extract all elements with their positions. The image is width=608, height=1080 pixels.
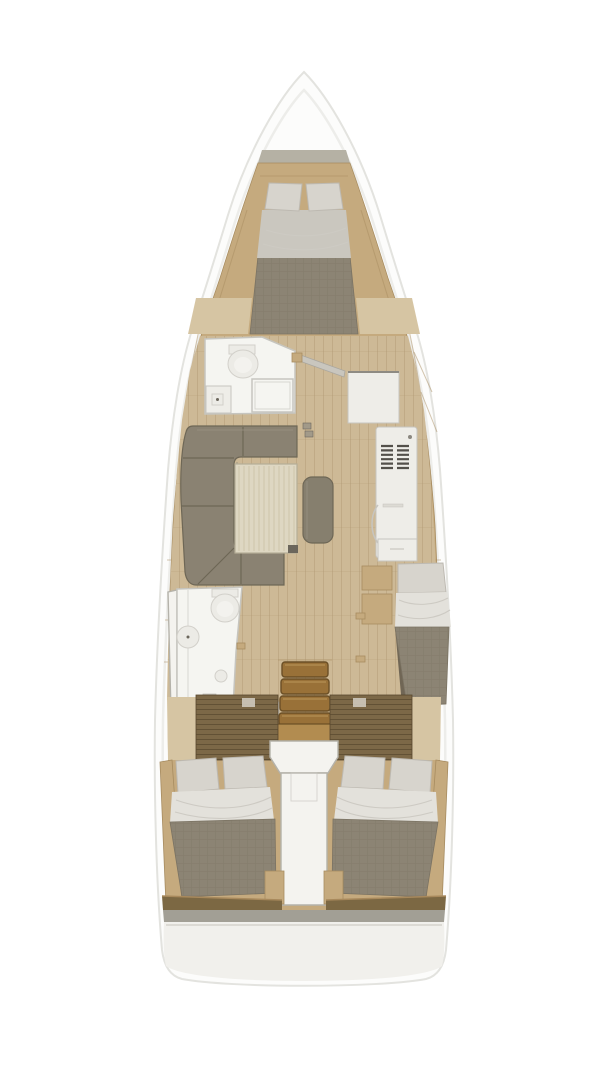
vberth-pillow-right [306, 183, 343, 211]
bed-sheet [170, 787, 274, 823]
bed-pillow [389, 758, 432, 793]
mast-post [303, 423, 311, 429]
floor-plan-canvas [0, 0, 608, 1080]
door-frame-tab [356, 613, 365, 619]
transom-deck [164, 922, 445, 981]
landing-octagon [270, 741, 338, 773]
stair-tread [279, 713, 331, 725]
outboard-wood [167, 697, 196, 760]
engine-box [281, 773, 327, 905]
cabin-floor-strip [356, 298, 420, 334]
cabin-door-gap [353, 698, 366, 707]
side-cabinet [362, 594, 392, 624]
slat-panel-port-lines [196, 695, 278, 760]
vberth-pillow-left [265, 183, 302, 211]
stair-tread [281, 679, 329, 694]
vberth-sheet [257, 210, 351, 258]
door-hinge [292, 353, 302, 362]
shower-pan [252, 379, 293, 412]
chart-table [348, 372, 399, 423]
indicator-dot [408, 435, 412, 439]
bed-pillow [341, 756, 385, 789]
berth-sheet [395, 592, 451, 627]
stern-gray-strip [163, 910, 445, 922]
toilet-bowl [217, 601, 234, 617]
galley-unit [372, 427, 417, 558]
bed-sheet [334, 787, 438, 823]
door-frame-tab [356, 656, 365, 662]
stair-bottom-step [276, 724, 334, 741]
bed-mattress-texture [170, 819, 276, 897]
table-leg-mark [288, 545, 298, 553]
anchor-locker [258, 150, 350, 163]
stair-tread [280, 696, 330, 711]
stair-tread [282, 662, 328, 677]
toilet-bowl [234, 357, 252, 373]
aft-cabin-port [160, 756, 276, 905]
bed-pillow [223, 756, 267, 789]
sink-drain [187, 636, 190, 639]
door-frame-tab [237, 643, 245, 649]
slat-panel-starboard-lines [330, 695, 412, 760]
berth-pillow [398, 563, 446, 593]
aft-head [168, 587, 245, 713]
aft-cabin-starboard [332, 756, 448, 905]
bed-pillow [176, 758, 219, 793]
mast-post [305, 431, 313, 437]
cabin-floor-strip [188, 298, 252, 334]
side-cabinet [362, 566, 392, 590]
shower-drain [215, 670, 227, 682]
outboard-wood [412, 697, 441, 760]
vberth-mattress-texture [250, 256, 358, 334]
bed-mattress-texture [332, 819, 438, 897]
cabin-door-gap [242, 698, 255, 707]
chart-table-top [348, 372, 399, 423]
yacht-floor-plan [0, 0, 608, 1080]
cabinet-handle [383, 504, 403, 507]
sink-drain [216, 398, 219, 401]
